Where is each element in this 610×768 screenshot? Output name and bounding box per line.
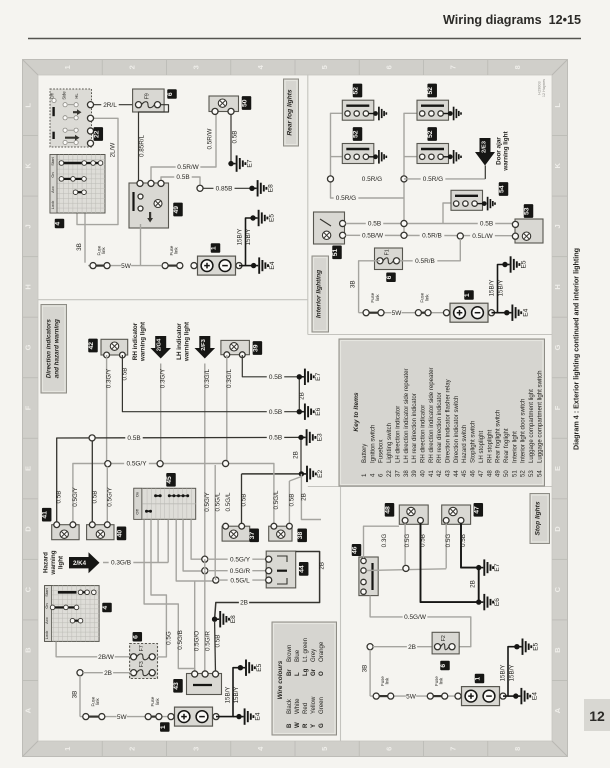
svg-text:2B: 2B: [104, 670, 112, 677]
svg-text:0.85B: 0.85B: [216, 186, 233, 193]
svg-text:LH indicator: LH indicator: [176, 323, 183, 360]
svg-text:54: 54: [499, 185, 506, 193]
svg-text:F2: F2: [441, 635, 447, 641]
svg-text:Y: Y: [310, 724, 317, 728]
svg-text:47: 47: [478, 470, 485, 477]
svg-text:Grey: Grey: [310, 648, 317, 662]
svg-text:0.5G/Y: 0.5G/Y: [204, 491, 211, 511]
svg-text:0.5R/G: 0.5R/G: [423, 176, 443, 183]
svg-text:link: link: [101, 247, 106, 254]
svg-text:39: 39: [252, 344, 259, 352]
svg-text:Off: Off: [134, 508, 139, 514]
svg-text:15B/Y: 15B/Y: [245, 229, 252, 246]
svg-text:45: 45: [166, 476, 173, 484]
svg-text:On: On: [44, 603, 49, 608]
svg-text:E5: E5: [269, 214, 276, 222]
svg-text:G: G: [553, 344, 562, 350]
svg-text:E2: E2: [317, 470, 324, 478]
svg-text:0.5B: 0.5B: [269, 409, 282, 416]
svg-text:0.3G: 0.3G: [381, 534, 388, 548]
svg-text:0.5G/L: 0.5G/L: [225, 492, 232, 511]
svg-text:Door ajar: Door ajar: [496, 137, 503, 165]
svg-text:F9: F9: [144, 93, 150, 99]
svg-text:G: G: [23, 344, 32, 350]
svg-text:F3: F3: [139, 661, 145, 667]
svg-text:0.5L/W: 0.5L/W: [472, 233, 493, 240]
svg-text:46: 46: [352, 546, 359, 554]
svg-text:link: link: [439, 677, 444, 684]
svg-text:0.5G/W: 0.5G/W: [404, 614, 427, 621]
svg-text:8: 8: [513, 747, 522, 751]
svg-text:E5: E5: [521, 260, 528, 268]
svg-text:0.5B: 0.5B: [288, 494, 295, 507]
svg-text:0.5G/Y: 0.5G/Y: [230, 556, 251, 563]
svg-text:Fusebox: Fusebox: [378, 440, 385, 463]
svg-text:0.5B: 0.5B: [460, 534, 467, 547]
svg-text:0.5B: 0.5B: [231, 131, 238, 144]
svg-text:F7: F7: [139, 645, 145, 651]
svg-text:0.5B: 0.5B: [127, 435, 140, 442]
svg-text:Battery: Battery: [361, 443, 368, 463]
svg-text:48: 48: [385, 506, 392, 514]
svg-text:A: A: [553, 707, 562, 713]
svg-text:Orange: Orange: [318, 641, 325, 662]
svg-text:0.3G/B: 0.3G/B: [111, 560, 131, 567]
svg-text:F1: F1: [385, 249, 391, 255]
svg-text:Rear foglight: Rear foglight: [503, 428, 510, 463]
svg-text:6: 6: [384, 747, 393, 751]
svg-text:45: 45: [461, 470, 468, 477]
svg-text:Br: Br: [286, 669, 293, 676]
svg-text:38: 38: [403, 470, 410, 477]
svg-text:22: 22: [386, 470, 393, 477]
svg-text:E4: E4: [269, 261, 276, 269]
svg-text:On: On: [50, 172, 55, 177]
svg-text:15B/Y: 15B/Y: [224, 687, 231, 704]
svg-text:0.3G/L: 0.3G/L: [204, 369, 211, 388]
svg-text:6: 6: [440, 664, 447, 668]
svg-text:0.85R/L: 0.85R/L: [139, 134, 146, 157]
svg-text:Yellow: Yellow: [310, 696, 317, 714]
svg-text:0.5B: 0.5B: [420, 534, 427, 547]
svg-text:Lighting switch: Lighting switch: [386, 423, 393, 463]
svg-text:B: B: [553, 647, 562, 653]
svg-text:warning light: warning light: [140, 321, 147, 362]
svg-text:K: K: [553, 163, 562, 169]
svg-text:Lt. green: Lt. green: [302, 638, 309, 662]
svg-text:4: 4: [102, 606, 109, 610]
svg-text:0.5B: 0.5B: [91, 491, 98, 504]
svg-text:link: link: [375, 294, 380, 301]
svg-text:3: 3: [192, 65, 201, 69]
svg-text:0.3G/Y: 0.3G/Y: [160, 368, 167, 388]
svg-text:RH indicator: RH indicator: [132, 322, 139, 360]
svg-text:0.5G: 0.5G: [165, 631, 172, 645]
svg-text:Blue: Blue: [294, 649, 301, 662]
svg-text:A: A: [23, 707, 32, 713]
svg-text:L: L: [294, 672, 301, 676]
svg-text:0.5R/W: 0.5R/W: [207, 128, 214, 149]
svg-text:49: 49: [173, 206, 180, 214]
svg-text:1: 1: [160, 725, 167, 729]
svg-text:link: link: [424, 294, 429, 301]
svg-text:48: 48: [486, 470, 493, 477]
svg-text:0.5G/Y: 0.5G/Y: [72, 486, 79, 506]
svg-text:5W: 5W: [117, 714, 128, 721]
svg-text:6: 6: [386, 275, 393, 279]
svg-text:J: J: [23, 224, 32, 228]
svg-text:4: 4: [55, 222, 62, 226]
svg-text:1: 1: [63, 65, 72, 69]
svg-text:2B: 2B: [293, 451, 300, 459]
svg-text:0.5B: 0.5B: [368, 221, 381, 228]
svg-text:L: L: [23, 103, 32, 108]
svg-text:Interior lighting: Interior lighting: [316, 270, 323, 318]
svg-text:W: W: [294, 722, 301, 728]
svg-text:Off: Off: [50, 92, 55, 98]
svg-text:O: O: [318, 671, 325, 676]
svg-text:0.5B: 0.5B: [241, 494, 248, 507]
svg-text:8: 8: [513, 65, 522, 69]
svg-text:Acc: Acc: [50, 186, 55, 193]
svg-text:41: 41: [428, 470, 435, 477]
svg-text:2: 2: [127, 747, 136, 751]
svg-text:52: 52: [520, 470, 527, 477]
svg-text:40: 40: [117, 530, 124, 538]
svg-text:E: E: [23, 466, 32, 471]
svg-text:2B: 2B: [408, 644, 416, 651]
svg-text:46: 46: [470, 470, 477, 477]
svg-text:link: link: [155, 698, 160, 705]
svg-text:B: B: [286, 723, 293, 728]
svg-text:44: 44: [299, 565, 306, 573]
svg-text:Stop lights: Stop lights: [535, 501, 542, 535]
svg-text:Hazard: Hazard: [43, 552, 50, 573]
svg-text:LH direction indicator side re: LH direction indicator side repeater: [403, 368, 410, 463]
svg-text:J: J: [553, 224, 562, 228]
svg-text:C: C: [553, 586, 562, 592]
svg-text:D: D: [553, 526, 562, 532]
svg-text:0.5B: 0.5B: [269, 374, 282, 381]
svg-text:E4: E4: [522, 308, 529, 316]
svg-text:52: 52: [353, 87, 360, 95]
svg-text:F: F: [553, 405, 562, 410]
svg-text:0.5G: 0.5G: [445, 534, 452, 548]
svg-text:G: G: [318, 723, 325, 728]
svg-text:3B: 3B: [350, 280, 357, 288]
svg-text:2R/L: 2R/L: [103, 102, 117, 109]
svg-text:Hazard switch: Hazard switch: [461, 425, 468, 463]
svg-text:Rear fog lights: Rear fog lights: [287, 89, 294, 135]
svg-text:41: 41: [42, 511, 49, 519]
svg-text:52: 52: [427, 130, 434, 138]
svg-text:link: link: [95, 698, 100, 705]
svg-text:2/F3: 2/F3: [201, 338, 207, 350]
svg-text:Stoplight switch: Stoplight switch: [470, 421, 477, 463]
svg-text:E6: E6: [494, 598, 501, 606]
svg-text:On: On: [134, 492, 139, 497]
svg-text:42: 42: [436, 470, 443, 477]
svg-text:15B/Y: 15B/Y: [489, 280, 496, 297]
svg-text:Direction indicators: Direction indicators: [46, 319, 53, 379]
svg-text:3B: 3B: [76, 243, 83, 251]
svg-text:0.5G/R: 0.5G/R: [230, 568, 251, 575]
svg-text:15B/Y: 15B/Y: [237, 229, 244, 246]
svg-text:Acc: Acc: [44, 617, 49, 624]
svg-text:1: 1: [63, 747, 72, 751]
svg-text:Key to items: Key to items: [353, 392, 360, 432]
svg-text:2L/W: 2L/W: [110, 143, 117, 158]
svg-text:54: 54: [536, 470, 543, 477]
svg-text:0.5B: 0.5B: [176, 174, 189, 181]
svg-text:22: 22: [93, 130, 100, 138]
svg-text:42: 42: [88, 342, 95, 350]
svg-text:RH direction indicator side re: RH direction indicator side repeater: [428, 367, 435, 463]
svg-text:53: 53: [528, 470, 535, 477]
svg-text:E5: E5: [532, 642, 539, 650]
svg-text:51: 51: [332, 249, 339, 257]
svg-text:0.5G: 0.5G: [404, 534, 411, 548]
svg-text:and hazard warning: and hazard warning: [54, 319, 61, 378]
svg-text:0.5B: 0.5B: [56, 491, 63, 504]
svg-text:15B/Y: 15B/Y: [497, 280, 504, 297]
svg-text:Gr: Gr: [310, 668, 317, 676]
svg-text:0.5R/B: 0.5R/B: [415, 258, 435, 265]
svg-text:0.5B: 0.5B: [215, 635, 222, 648]
svg-text:2/E3: 2/E3: [481, 140, 487, 153]
svg-text:2: 2: [127, 65, 136, 69]
svg-text:5W: 5W: [406, 693, 417, 700]
svg-text:44: 44: [453, 470, 460, 477]
svg-text:Rear foglight switch: Rear foglight switch: [495, 410, 502, 463]
svg-text:3B: 3B: [361, 665, 368, 673]
svg-text:5: 5: [320, 747, 329, 751]
svg-text:2B: 2B: [240, 600, 248, 607]
svg-text:2B: 2B: [300, 493, 307, 501]
svg-text:White: White: [294, 698, 301, 714]
svg-text:C: C: [23, 586, 32, 592]
svg-text:D: D: [23, 526, 32, 532]
svg-text:Wiring diagrams 12•15: Wiring diagrams 12•15: [443, 13, 581, 27]
svg-text:Direction indicator switch: Direction indicator switch: [453, 396, 460, 463]
svg-text:E7: E7: [247, 159, 254, 167]
svg-text:L: L: [553, 103, 562, 108]
svg-text:3B: 3B: [71, 691, 78, 699]
svg-text:link: link: [385, 677, 390, 684]
svg-text:0.3G/L: 0.3G/L: [226, 369, 233, 388]
svg-text:0.5G/R: 0.5G/R: [205, 631, 212, 651]
svg-text:50: 50: [242, 99, 249, 107]
svg-text:1: 1: [464, 293, 471, 297]
svg-text:R: R: [302, 723, 309, 728]
svg-text:Luggage compartment light: Luggage compartment light: [528, 389, 535, 463]
svg-text:0.5R/G: 0.5R/G: [362, 176, 382, 183]
svg-text:7: 7: [449, 747, 458, 751]
svg-text:1: 1: [475, 677, 482, 681]
svg-text:Start: Start: [44, 587, 49, 596]
svg-text:E4: E4: [531, 692, 538, 700]
svg-text:6: 6: [132, 635, 139, 639]
svg-text:0.5G/Y: 0.5G/Y: [106, 486, 113, 506]
svg-text:0.5G/L: 0.5G/L: [273, 490, 280, 509]
svg-text:50: 50: [503, 470, 510, 477]
svg-text:0.5G/B: 0.5G/B: [177, 630, 184, 650]
svg-text:Green: Green: [318, 697, 325, 714]
svg-text:Luggage compartment light swit: Luggage compartment light switch: [536, 371, 543, 463]
svg-text:0.5B: 0.5B: [480, 221, 493, 228]
svg-text:52: 52: [353, 130, 360, 138]
svg-text:3: 3: [192, 747, 201, 751]
svg-text:0.5R/B: 0.5R/B: [422, 233, 442, 240]
svg-text:E4: E4: [255, 712, 262, 720]
svg-text:LH rear direction indicator: LH rear direction indicator: [411, 393, 418, 463]
svg-text:47: 47: [473, 506, 480, 514]
svg-text:H: H: [23, 284, 32, 289]
svg-text:6: 6: [167, 92, 174, 96]
svg-text:RH rear direction indicator: RH rear direction indicator: [436, 392, 443, 463]
svg-text:37: 37: [394, 470, 401, 477]
svg-text:H: H: [553, 284, 562, 289]
svg-text:12: 12: [589, 708, 605, 724]
svg-text:38: 38: [297, 532, 304, 540]
svg-text:F: F: [23, 405, 32, 410]
svg-text:5W: 5W: [121, 263, 132, 270]
svg-text:H29003: H29003: [538, 81, 542, 94]
svg-text:RH stoplight: RH stoplight: [486, 430, 493, 463]
svg-text:Lock: Lock: [44, 631, 49, 639]
svg-text:15B/Y: 15B/Y: [500, 665, 507, 682]
svg-text:B: B: [23, 647, 32, 653]
svg-text:40: 40: [419, 470, 426, 477]
svg-text:2/K4: 2/K4: [73, 560, 87, 567]
svg-text:warning light: warning light: [184, 321, 191, 362]
svg-text:2/G4: 2/G4: [157, 338, 163, 351]
svg-text:Side: Side: [62, 91, 67, 100]
svg-text:0.5B/W: 0.5B/W: [362, 233, 384, 240]
svg-text:2B: 2B: [470, 580, 477, 588]
svg-text:E: E: [553, 466, 562, 471]
svg-text:Start: Start: [50, 156, 55, 165]
svg-text:52: 52: [427, 87, 434, 95]
svg-text:0.5G/O: 0.5G/O: [194, 631, 201, 651]
svg-text:E7: E7: [315, 372, 322, 380]
svg-text:Brown: Brown: [286, 645, 293, 662]
svg-text:0.5R/W: 0.5R/W: [177, 164, 199, 171]
svg-text:Ignition switch: Ignition switch: [369, 425, 376, 463]
svg-text:2B/W: 2B/W: [98, 654, 115, 661]
svg-text:warning: warning: [50, 550, 57, 575]
svg-text:Black: Black: [286, 698, 293, 714]
svg-text:0.5G/Y: 0.5G/Y: [126, 461, 147, 468]
svg-text:LH stoplight: LH stoplight: [478, 431, 485, 463]
svg-text:43: 43: [173, 682, 180, 690]
svg-text:link: link: [174, 247, 179, 254]
svg-text:39: 39: [411, 470, 418, 477]
svg-text:Lg: Lg: [302, 668, 309, 676]
svg-text:0.5G/L: 0.5G/L: [230, 577, 250, 584]
svg-text:0.5B: 0.5B: [269, 435, 282, 442]
svg-text:0.5G/L: 0.5G/L: [214, 492, 221, 511]
svg-text:5W: 5W: [392, 310, 403, 317]
svg-text:0.5B: 0.5B: [121, 368, 128, 381]
svg-text:E8: E8: [268, 184, 275, 192]
svg-text:LH direction indicator: LH direction indicator: [394, 406, 401, 463]
svg-text:43: 43: [445, 470, 452, 477]
svg-text:53: 53: [524, 207, 531, 215]
svg-text:Red: Red: [302, 703, 309, 714]
svg-text:12 Haynes: 12 Haynes: [542, 79, 546, 97]
svg-text:Interior light: Interior light: [511, 431, 518, 463]
svg-text:E5: E5: [256, 663, 263, 671]
svg-text:1: 1: [211, 246, 218, 250]
svg-text:Lock: Lock: [50, 201, 55, 209]
svg-text:warning light: warning light: [503, 131, 510, 172]
svg-text:0.5R/G: 0.5R/G: [336, 195, 356, 202]
svg-text:E6: E6: [315, 407, 322, 415]
svg-text:Direction indicator flasher re: Direction indicator flasher relay: [445, 378, 452, 463]
svg-text:Diagram 4 : Exterior lighting: Diagram 4 : Exterior lighting continued …: [572, 248, 581, 450]
svg-text:Wire colours: Wire colours: [277, 660, 284, 699]
svg-text:HL: HL: [74, 93, 79, 99]
svg-text:51: 51: [511, 470, 518, 477]
svg-text:37: 37: [249, 532, 256, 540]
svg-text:7: 7: [449, 65, 458, 69]
svg-text:E8: E8: [230, 615, 237, 623]
svg-text:15B/Y: 15B/Y: [508, 665, 515, 682]
svg-text:49: 49: [495, 470, 502, 477]
svg-text:K: K: [23, 163, 32, 169]
svg-text:2B: 2B: [319, 562, 326, 570]
svg-text:5: 5: [320, 65, 329, 69]
svg-text:6: 6: [384, 65, 393, 69]
svg-text:15B/Y: 15B/Y: [233, 687, 240, 704]
svg-text:Interior light door switch: Interior light door switch: [520, 399, 527, 463]
svg-text:RH direction indicator: RH direction indicator: [419, 405, 426, 463]
svg-text:0.3G/Y: 0.3G/Y: [106, 368, 113, 388]
svg-text:E7: E7: [494, 563, 501, 571]
svg-text:light: light: [58, 555, 65, 569]
svg-text:E3: E3: [317, 433, 324, 441]
